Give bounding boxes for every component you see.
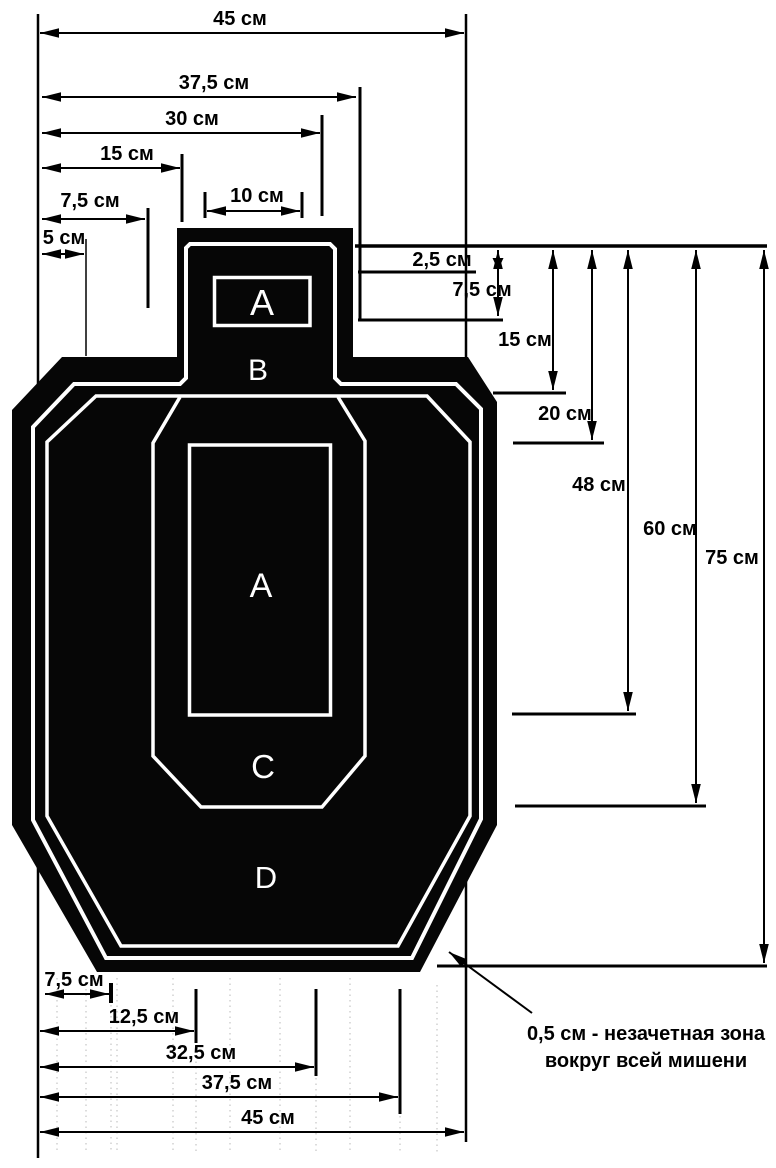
dim-top-5cm: 5 см	[42, 227, 85, 254]
dim-label-top-5cm: 5 см	[43, 227, 86, 249]
dim-label-bottom-37-5cm: 37,5 см	[202, 1072, 272, 1094]
zone-label-body-a: A	[250, 567, 273, 605]
dim-label-top-45cm: 45 см	[213, 8, 267, 30]
dim-top-37-5cm: 37,5 см	[42, 72, 356, 97]
dim-label-right-7-5cm: 7,5 см	[452, 279, 511, 301]
target: A B A C D	[12, 228, 497, 972]
dim-label-top-10cm: 10 см	[230, 185, 284, 207]
dim-top-7-5cm: 7,5 см	[42, 190, 145, 219]
dim-label-top-37-5cm: 37,5 см	[179, 72, 249, 94]
note-text-line1: 0,5 см - незачетная зона	[527, 1023, 766, 1045]
top-dimensions: 45 см 37,5 см 30 см 15 см 10 см 7,5 см 5…	[40, 8, 464, 254]
zone-label-body-c: C	[251, 748, 275, 785]
dim-bottom-12-5cm: 12,5 см	[40, 989, 196, 1043]
note-text-line2: вокруг всей мишени	[545, 1050, 747, 1072]
arrowhead-2-5	[493, 258, 504, 270]
dim-top-30cm: 30 см	[42, 108, 320, 133]
dim-top-10cm: 10 см	[207, 185, 300, 211]
dim-label-bottom-32-5cm: 32,5 см	[166, 1042, 236, 1064]
dim-label-bottom-7-5cm: 7,5 см	[44, 969, 103, 991]
dim-bottom-32-5cm: 32,5 см	[40, 989, 316, 1076]
dim-label-top-7-5cm: 7,5 см	[60, 190, 119, 212]
dim-label-right-75cm: 75 см	[705, 547, 759, 569]
zone-label-head-a: A	[250, 282, 274, 323]
no-score-note: 0,5 см - незачетная зона вокруг всей миш…	[449, 952, 766, 1072]
dim-top-45cm: 45 см	[40, 8, 464, 33]
dim-label-right-48cm: 48 см	[572, 474, 626, 496]
dim-label-top-15cm: 15 см	[100, 143, 154, 165]
note-arrow	[449, 952, 532, 1013]
dim-top-15cm: 15 см	[42, 143, 180, 168]
dim-label-top-30cm: 30 см	[165, 108, 219, 130]
dim-label-bottom-45cm: 45 см	[241, 1107, 295, 1129]
zone-label-head-b: B	[248, 354, 268, 387]
dim-bottom-7-5cm: 7,5 см	[44, 969, 111, 1003]
dim-label-right-20cm: 20 см	[538, 403, 592, 425]
dim-label-right-2-5cm: 2,5 см	[412, 249, 471, 271]
dim-label-right-15cm: 15 см	[498, 329, 552, 351]
dim-label-right-60cm: 60 см	[643, 518, 697, 540]
diagram-canvas: 45 см 37,5 см 30 см 15 см 10 см 7,5 см 5…	[0, 0, 776, 1168]
zone-label-body-d: D	[255, 860, 277, 895]
target-dimension-drawing: 45 см 37,5 см 30 см 15 см 10 см 7,5 см 5…	[0, 0, 776, 1168]
dim-label-bottom-12-5cm: 12,5 см	[109, 1006, 179, 1028]
bottom-dimensions: 7,5 см 12,5 см 32,5 см 37,5 см 45 см	[40, 969, 464, 1132]
